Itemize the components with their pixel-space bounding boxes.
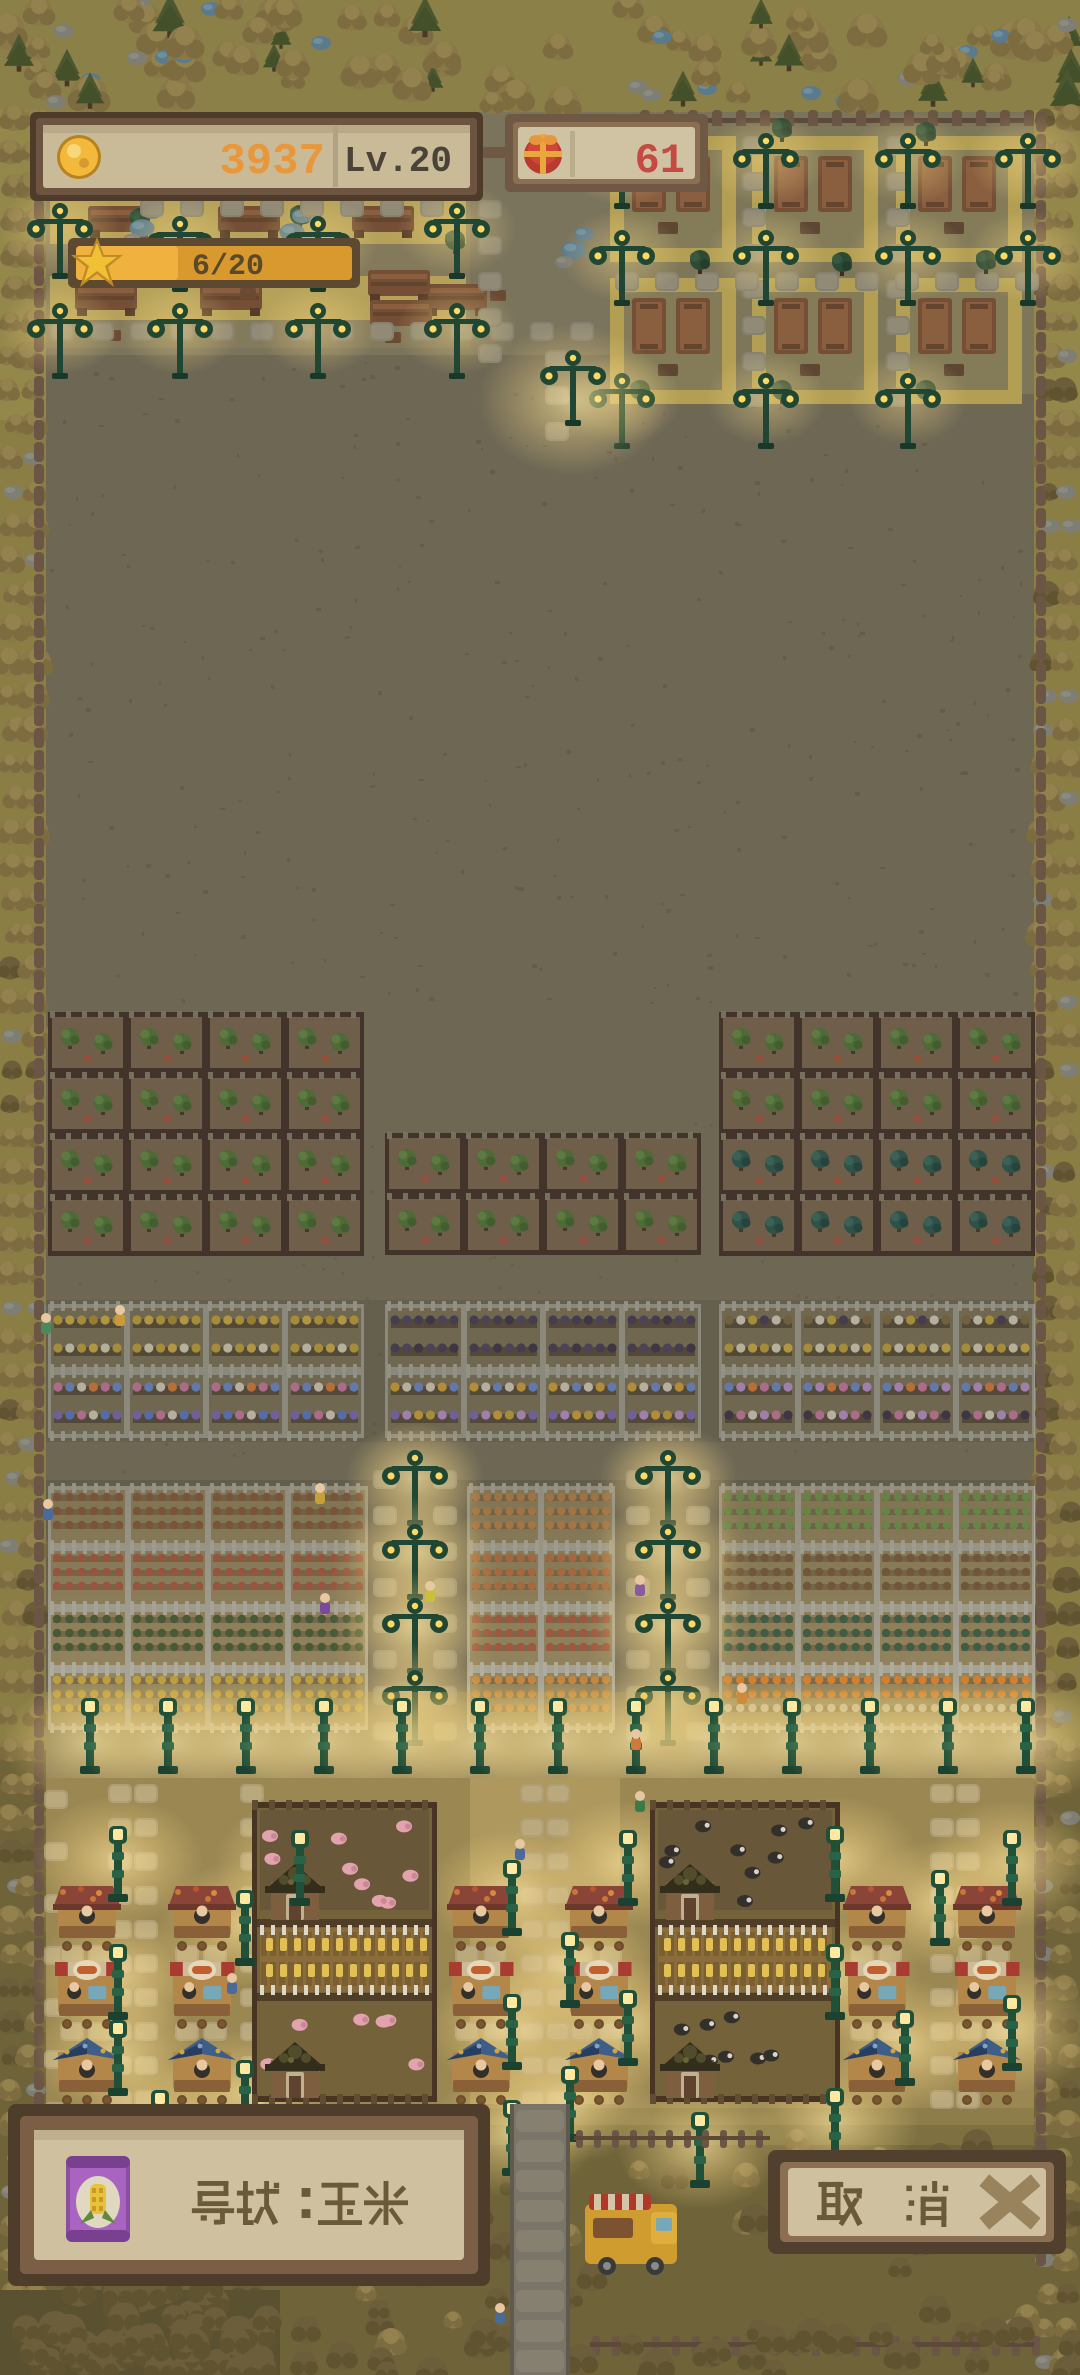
svg-text:61: 61	[635, 137, 685, 185]
svg-text:Lv.20: Lv.20	[344, 141, 452, 182]
svg-text:6/20: 6/20	[192, 250, 264, 284]
svg-text:3937: 3937	[219, 137, 325, 187]
